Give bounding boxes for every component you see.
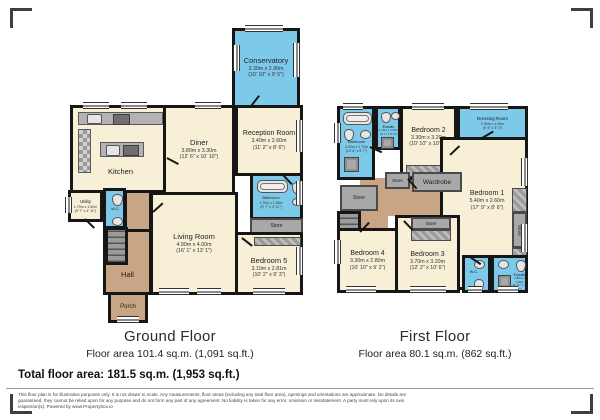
ground-floor-plan: Hall Porch Conservatory 3.30m x 2.90m (1… [55,25,310,330]
island-sink-icon [106,145,120,156]
window [468,286,482,293]
window [296,181,303,205]
bedroom5-wardrobe-hatch [254,237,301,246]
bedroom3-wardrobe-hatch [411,230,451,241]
store-gf-label: Store [271,223,283,229]
sink-icon [498,260,509,269]
bath-icon [257,180,288,193]
ground-floor-area: Floor area 101.4 sq.m. (1,091 sq.ft.) [40,348,300,360]
window [498,286,518,293]
toilet-icon [112,194,123,206]
window [195,102,221,109]
dressing-dims-imperial: (9' 6" x 3' 3") [477,126,508,130]
porch-label: Porch [120,304,136,311]
room-wc-gf: W.C. [103,188,126,229]
window [346,286,376,293]
living-dims-imperial: (16' 1" x 13' 1") [173,248,215,254]
window [343,103,363,110]
window [296,247,303,275]
room-dressing: Dressing Room 2.90m x 1.00m (9' 6" x 3' … [457,106,528,140]
bedroom4-label: Bedroom 4 [350,250,386,258]
window [245,25,283,32]
window [233,45,240,71]
reception-label: Reception Room [243,130,295,138]
bathroom-gf-dims-imperial: (5' 7" x 4' 11") [256,205,286,209]
living-label: Living Room [173,233,215,242]
utility-dims-imperial: (5' 7" x 4' 11") [74,209,97,213]
sink-icon [112,217,123,226]
window [65,197,72,213]
kitchen-label: Kitchen [93,168,148,177]
bedroom5-label: Bedroom 5 [251,257,288,266]
living-dims-metric: 4.90m x 4.00m [173,242,215,248]
store-bedroom3: Store [411,217,451,230]
window [521,224,528,252]
window [410,286,446,293]
first-floor-title: First Floor [305,328,565,345]
divider-rule [6,388,594,389]
room-ensuite-top: Ensuite 1.10m x 1.00m (3' 7" x 3' 3") [375,106,401,150]
corner-bracket-top-right [571,8,593,28]
conservatory-label: Conservatory [244,57,289,66]
conservatory-dims-imperial: (10' 10" x 9' 6") [244,72,289,78]
bedroom5-dims-metric: 3.10m x 2.81m [251,266,288,272]
wardrobe-label: Wardrobe [423,179,451,186]
corner-bracket-bottom-right [571,394,593,414]
diner-label: Diner [180,139,218,148]
store-mid: Store [385,172,410,189]
first-floor-plan: Bathroom 3.20m x 1.70m (10' 6" x 5' 7") … [330,98,535,310]
first-floor-caption: First Floor Floor area 80.1 sq.m. (862 s… [305,328,565,360]
window [521,158,528,186]
bedroom5-dims-imperial: (10' 2" x 9' 3") [251,272,288,278]
bedroom2-label: Bedroom 2 [409,127,447,135]
window [253,288,285,295]
window [412,103,444,110]
stairs-gf [105,227,128,265]
wc-ff-label: W.C. [465,270,483,275]
ground-floor-title: Ground Floor [40,328,300,345]
window [83,102,109,109]
toilet-icon [516,260,526,272]
island-hob-icon [123,145,139,156]
wardrobe: Wardrobe [412,172,462,192]
room-hall-corridor [124,188,152,232]
room-living: Living Room 4.90m x 4.00m (16' 1" x 13' … [150,192,238,295]
bedroom4-dims-metric: 3.30m x 2.80m [350,258,386,264]
dressing-label: Dressing Room [477,116,508,121]
disclaimer-text: This floor plan is for illustrative purp… [18,392,418,410]
floorplan-page: Hall Porch Conservatory 3.30m x 2.90m (1… [0,0,600,420]
toilet-icon [381,112,391,123]
store-mid-label: Store [392,178,403,183]
hob-icon [113,114,130,125]
ground-floor-caption: Ground Floor Floor area 101.4 sq.m. (1,0… [40,328,300,360]
bedroom3-label: Bedroom 3 [410,251,446,259]
window [470,103,508,110]
diner-dims-imperial: (12' 6" x 10' 10") [180,154,218,160]
window [117,316,139,323]
room-conservatory: Conservatory 3.30m x 2.90m (10' 10" x 9'… [232,28,300,108]
window [159,288,189,295]
bath-icon [343,112,372,125]
room-diner: Diner 3.80m x 3.30m (12' 6" x 10' 10") [163,105,235,195]
room-reception: Reception Room 3.40m x 2.60m (11' 2" x 8… [235,105,303,176]
window [296,120,303,152]
sink-icon [391,112,400,120]
window [121,102,147,109]
wc-gf-label: W.C. [107,207,124,212]
total-floor-area: Total floor area: 181.5 sq.m. (1,953 sq.… [18,369,240,381]
shower-icon [344,157,359,172]
room-bedroom3: Store Bedroom 3 3.70m x 3.20m (12' 2" x … [395,215,460,293]
room-bathroom-ff: Bathroom 3.20m x 1.70m (10' 6" x 5' 7") [337,106,375,180]
bedroom3-dims-imperial: (12' 2" x 10' 6") [410,265,446,271]
store-left-label: Store [353,195,365,201]
store-bedroom3-label: Store [426,221,437,226]
kitchen-pantry-unit [78,129,91,173]
window [334,240,341,264]
bedroom1-closet-hatch [512,188,527,212]
window [293,43,300,77]
hall-label: Hall [121,271,134,280]
kitchen-sink-icon [87,114,102,124]
room-kitchen: Kitchen [70,105,166,193]
window [334,123,341,143]
corner-bracket-top-left [10,8,32,28]
window [197,288,221,295]
first-floor-area: Floor area 80.1 sq.m. (862 sq.ft.) [305,348,565,360]
bathroom-ff-dims-imperial: (10' 6" x 5' 7") [341,149,372,153]
store-left: Store [340,185,378,211]
sink-icon [360,130,371,139]
room-bedroom4: Bedroom 4 3.30m x 2.80m (10' 10" x 9' 2"… [337,228,398,293]
shower-icon [381,137,394,149]
reception-dims-imperial: (11' 2" x 8' 6") [243,145,295,151]
ensuite-top-dims-imperial: (3' 7" x 3' 3") [378,133,399,137]
bedroom4-dims-imperial: (10' 10" x 9' 2") [350,265,386,271]
